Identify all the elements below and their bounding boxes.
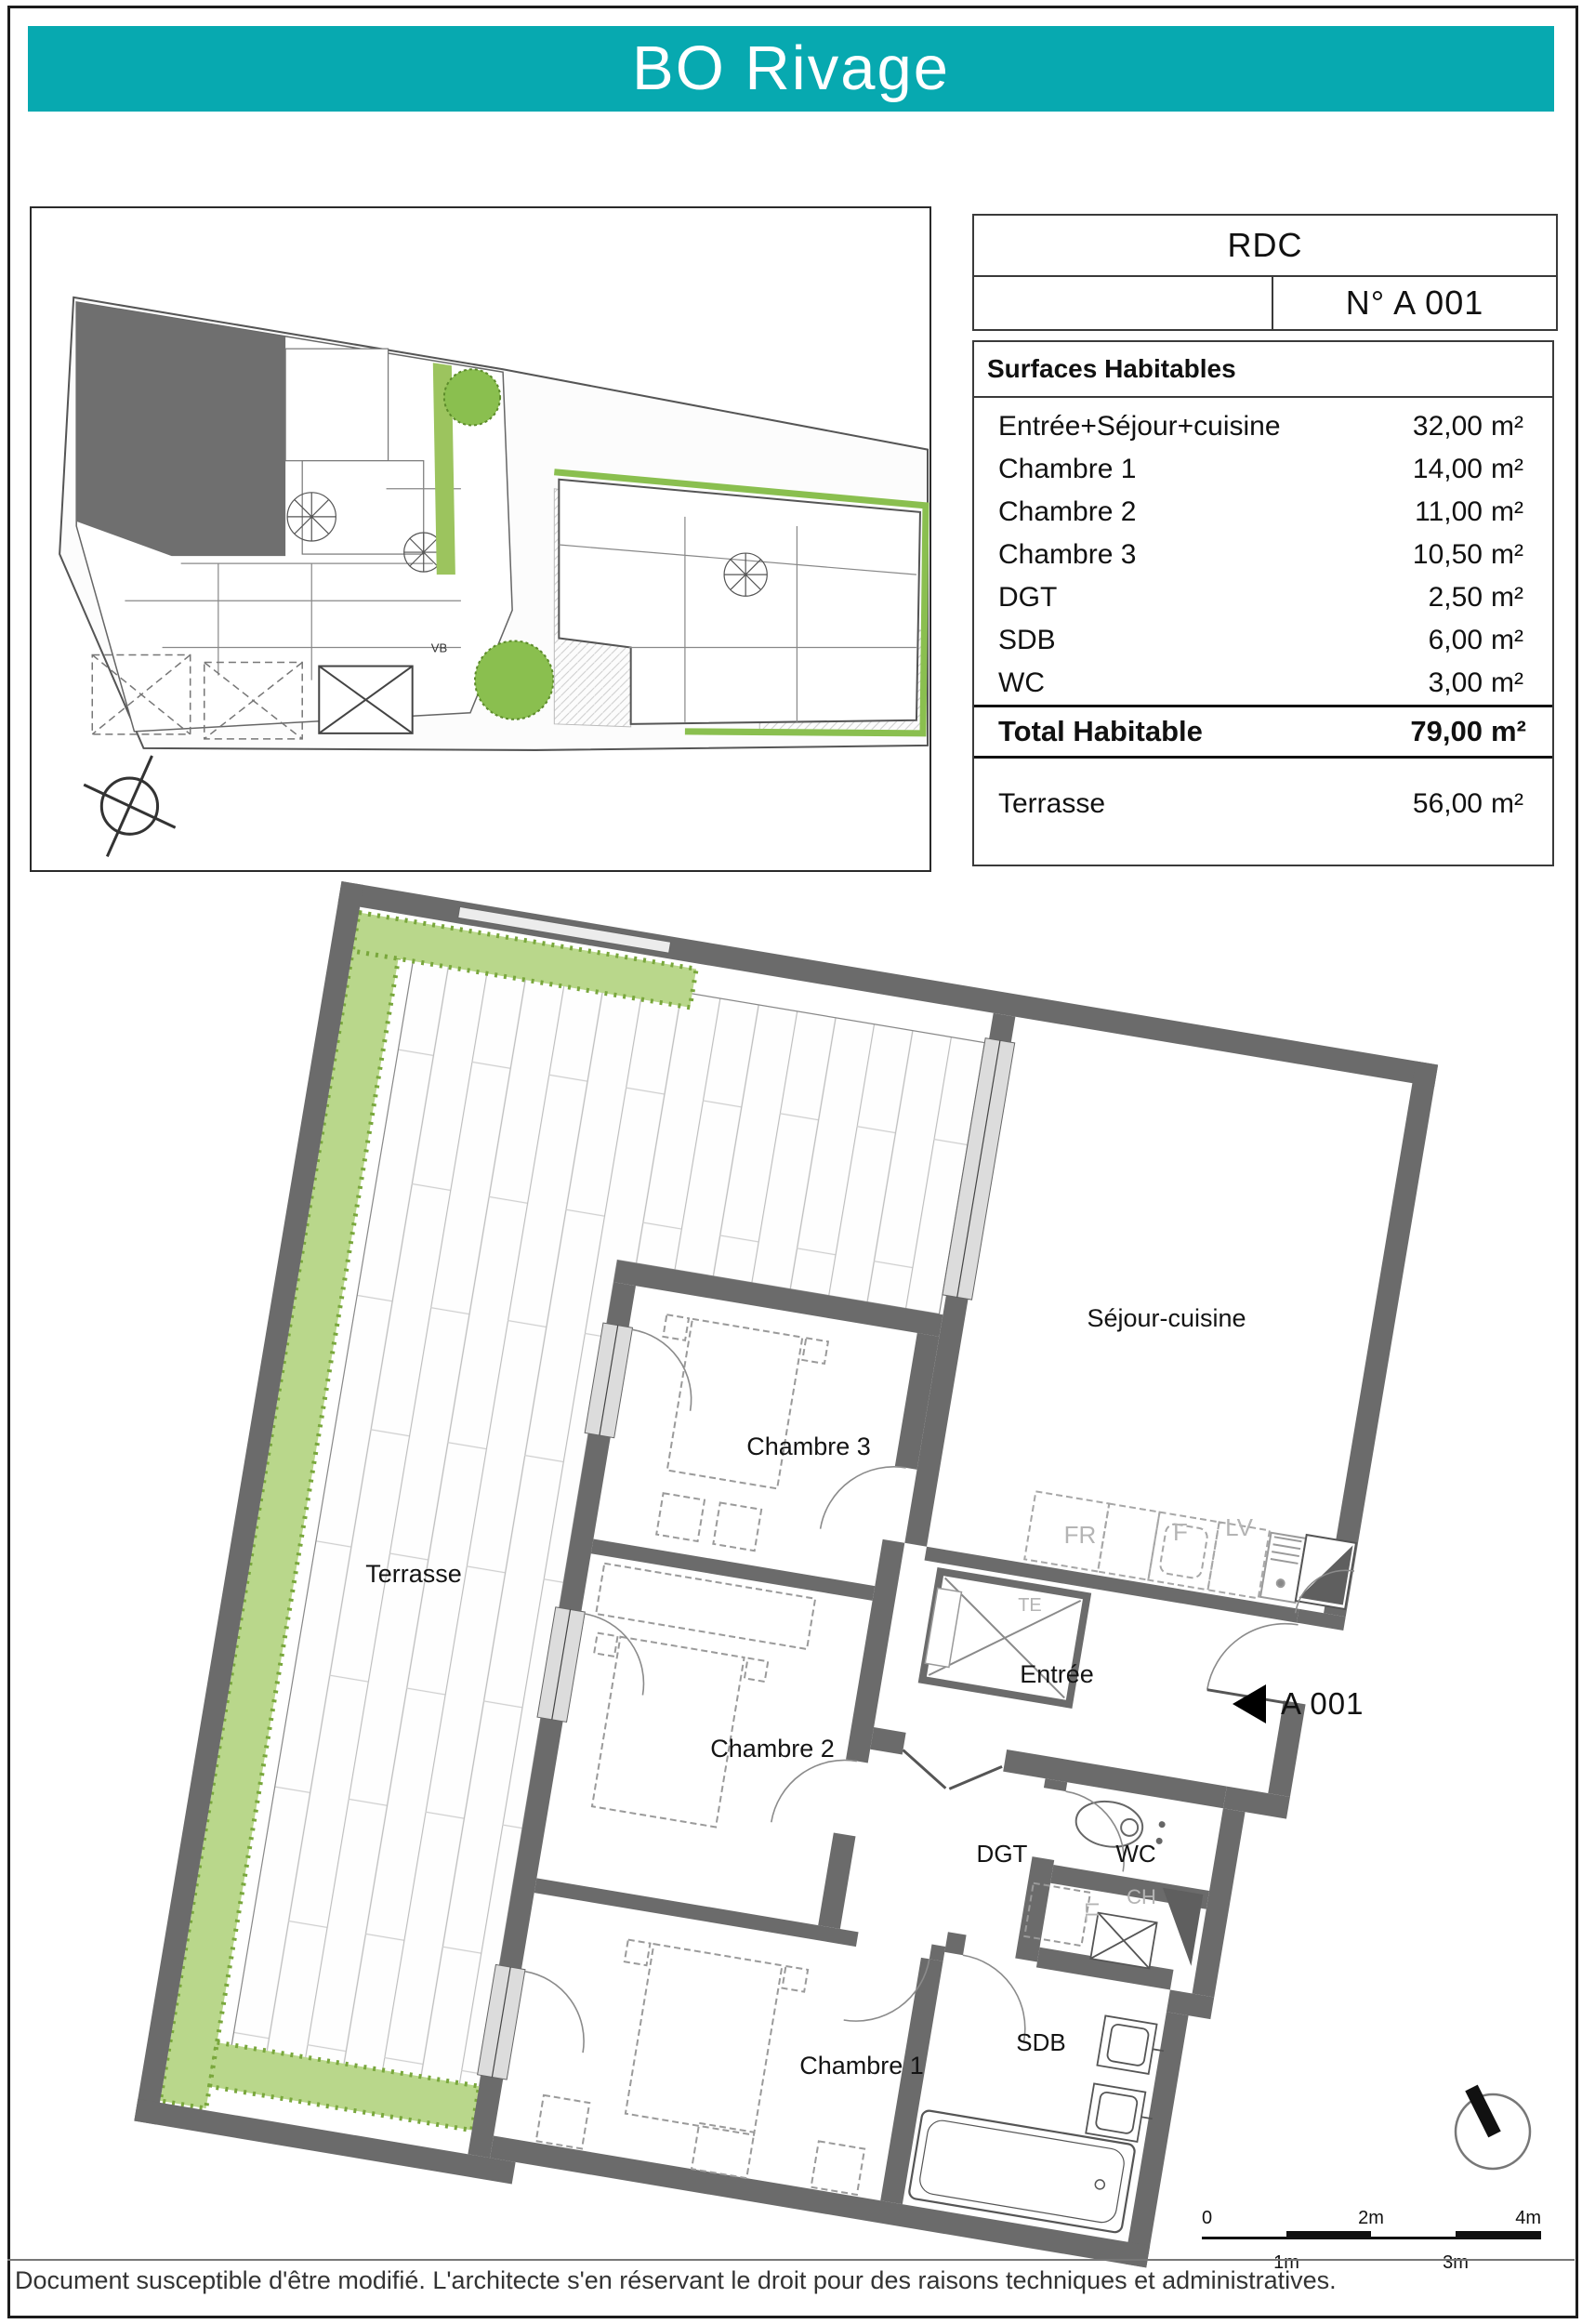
unit-header-table: RDC N° A 001 [972,214,1558,331]
room-label-entree: Entrée [1020,1660,1094,1688]
table-row: SDB6,00m² [974,619,1552,662]
table-row: Chambre 114,00m² [974,448,1552,491]
terrace-row: Terrasse56,00m² [974,783,1552,825]
room-label-dgt: DGT [977,1840,1028,1868]
site-plan-box: VB [30,206,931,872]
table-row: Chambre 310,50m² [974,534,1552,576]
tree-icon [475,640,553,719]
room-label-chambre3: Chambre 3 [746,1433,871,1460]
scale-label: 4m [1515,2208,1541,2228]
disclaimer-text: Document susceptible d'être modifié. L'a… [15,2266,1575,2295]
washer-label: LL [1081,1902,1101,1922]
te-label: TE [1018,1595,1042,1616]
vb-label: VB [431,641,448,655]
project-title: BO Rivage [28,26,1554,112]
table-row: DGT2,50m² [974,576,1552,619]
room-label-sejour: Séjour-cuisine [1087,1304,1246,1332]
corner-closet [1296,1535,1356,1609]
footer: Document susceptible d'être modifié. L'a… [7,2259,1575,2295]
level-cell: RDC [974,216,1556,277]
surfaces-table: Surfaces Habitables Entrée+Séjour+cuisin… [972,340,1554,866]
table-row: Chambre 211,00m² [974,491,1552,534]
fridge-label: FR [1064,1521,1097,1549]
floor-plan-drawing: Séjour-cuisine Chambre 3 Chambre 2 Chamb… [0,865,1582,2268]
apartment-geometry [134,881,1439,2268]
room-label-chambre2: Chambre 2 [710,1735,835,1763]
shaft-box [319,667,412,733]
room-label-wc: WC [1115,1840,1155,1868]
unit-entrance-marker: A 001 [1233,1684,1364,1723]
unit-marker-label: A 001 [1281,1686,1364,1721]
unit-number-cell: N° A 001 [1273,277,1556,329]
table-row: Entrée+Séjour+cuisine32,00m² [974,405,1552,448]
boiler-label: CH [1127,1885,1156,1908]
room-label-terrasse: Terrasse [365,1560,462,1588]
table-row: WC3,00m² [974,662,1552,705]
tree-icon [444,369,500,425]
door-arcs [513,1329,1374,2165]
north-compass-icon [1456,2088,1530,2169]
empty-cell [974,277,1273,329]
left-building-shaded-unit [76,302,285,556]
scale-label: 0 [1202,2208,1212,2228]
oven-label: F [1173,1518,1188,1546]
total-row: Total Habitable79,00m² [974,705,1552,759]
scale-label: 2m [1358,2208,1384,2228]
site-plan-drawing: VB [32,208,929,870]
site-compass-icon [84,756,175,856]
surfaces-title: Surfaces Habitables [974,342,1552,398]
room-label-chambre1: Chambre 1 [799,2052,924,2080]
stair-icon [724,553,767,596]
dishwasher-label: LV [1225,1513,1254,1541]
room-label-sdb: SDB [1016,2028,1065,2056]
title-banner: BO Rivage [28,26,1554,112]
